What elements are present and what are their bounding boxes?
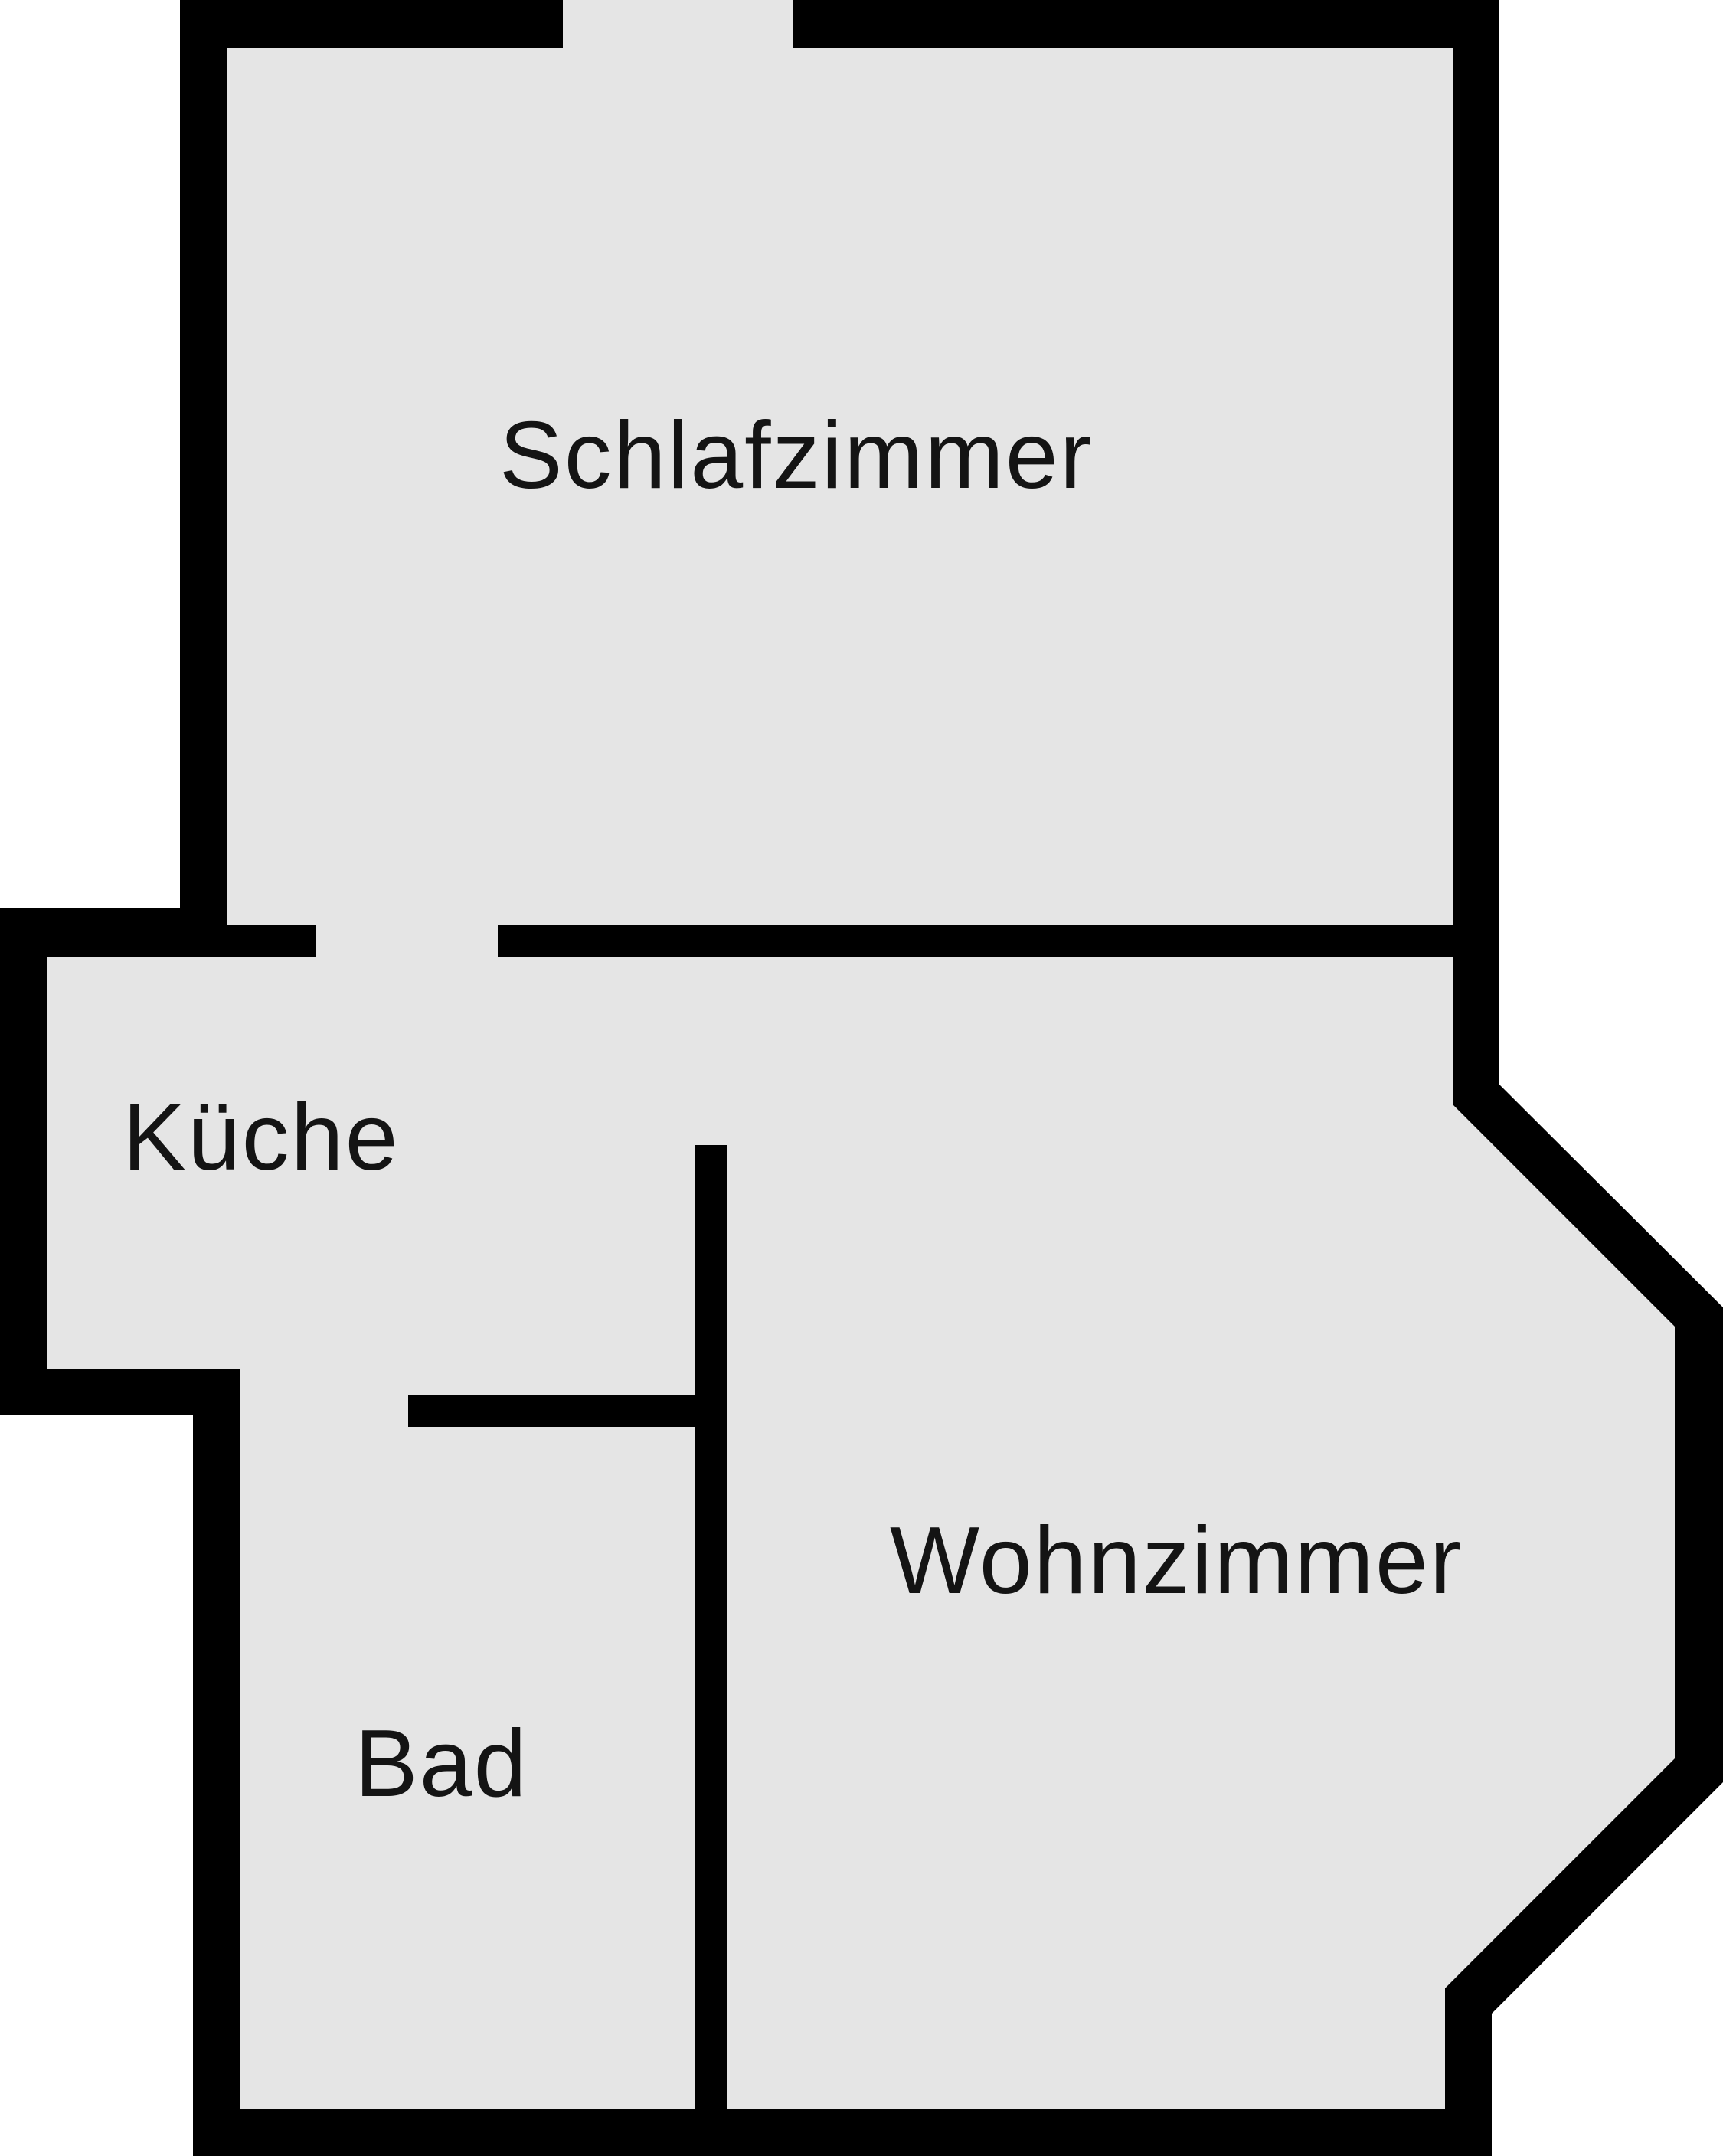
middle-wall-left-segment <box>204 925 316 957</box>
label-bad: Bad <box>355 1711 528 1817</box>
schlafzimmer-left-wall <box>180 0 227 957</box>
kueche-left-wall <box>0 908 47 1415</box>
top-wall-left <box>180 0 563 48</box>
floor-plan-svg: Schlafzimmer Küche Wohnzimmer Bad <box>0 0 1723 2156</box>
top-opening-floor <box>563 0 793 54</box>
wohnzimmer-partition-wall <box>695 1145 727 2156</box>
floor-areas <box>47 0 1675 2110</box>
label-wohnzimmer: Wohnzimmer <box>890 1508 1463 1614</box>
label-kueche: Küche <box>123 1085 400 1190</box>
kueche-bottom-wall <box>0 1369 240 1415</box>
label-schlafzimmer: Schlafzimmer <box>499 403 1093 509</box>
floor-plan-canvas: Schlafzimmer Küche Wohnzimmer Bad <box>0 0 1723 2156</box>
bad-top-wall <box>408 1395 727 1427</box>
bad-left-wall <box>193 1415 240 2156</box>
middle-wall-right-segment <box>498 925 1453 957</box>
top-wall-right <box>793 0 1499 48</box>
bottom-wall <box>193 2109 1492 2156</box>
